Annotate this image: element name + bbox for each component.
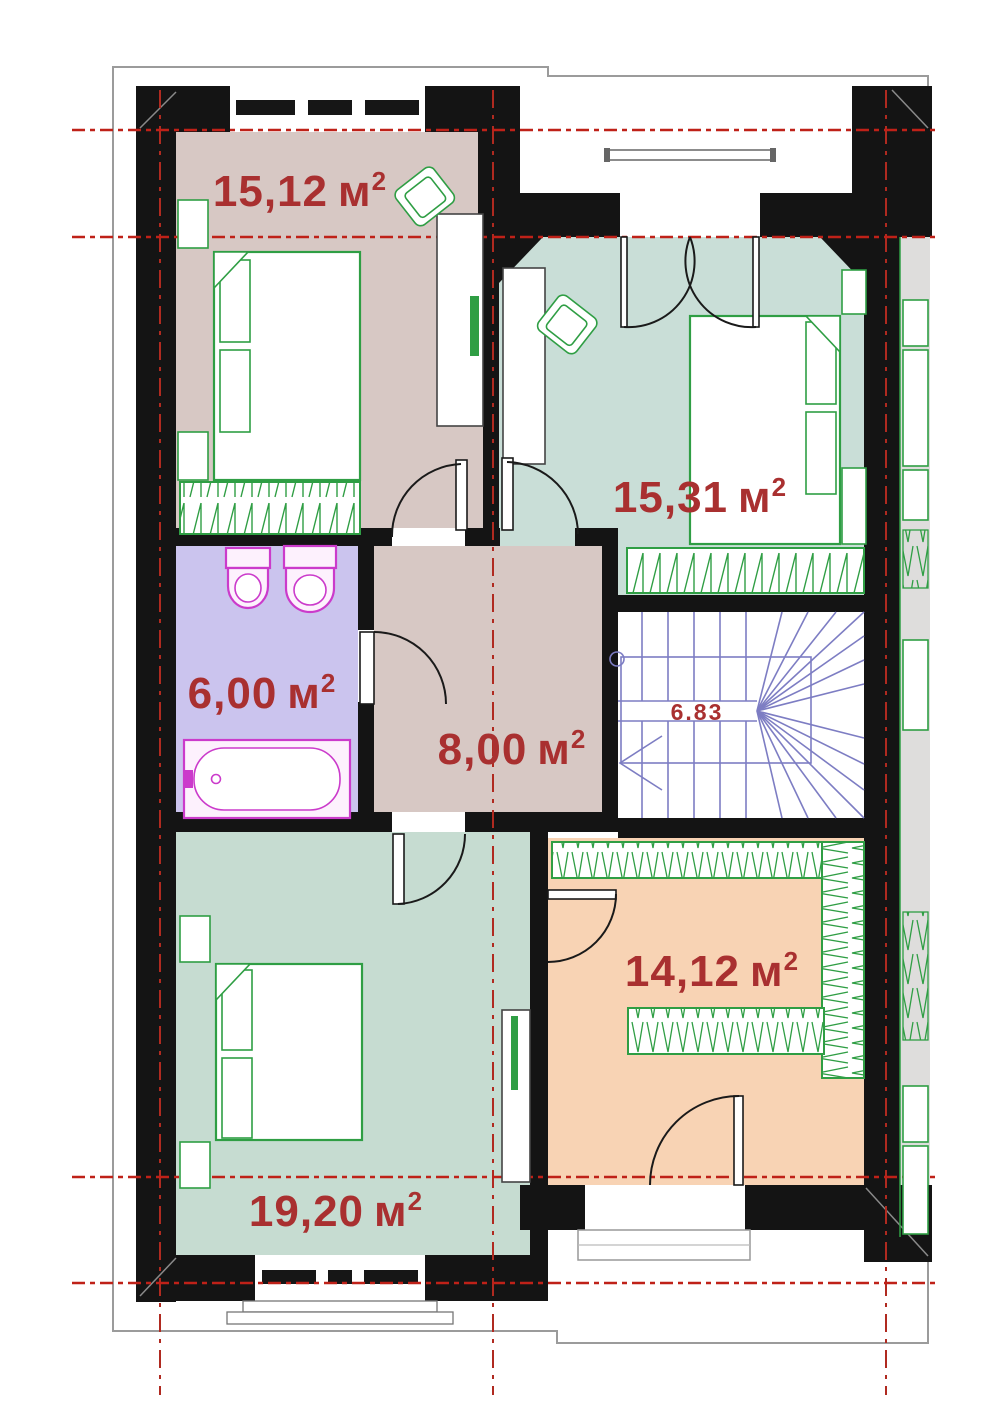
- sink: [284, 546, 336, 612]
- wall-segment: [358, 546, 374, 630]
- wall-segment: [136, 86, 230, 132]
- door-leaf: [502, 458, 513, 530]
- faucet: [184, 770, 193, 788]
- wall-segment: [483, 237, 499, 528]
- room-label-bedroom-top-right: 15,31м2: [613, 472, 787, 522]
- wall-segment: [520, 1185, 585, 1230]
- room-label-dressing-room: 14,12м2: [625, 946, 799, 996]
- nightstand: [178, 432, 208, 480]
- bathtub: [184, 740, 350, 818]
- wardrobe-dressing-middle: [628, 1008, 824, 1054]
- wall-segment: [478, 86, 520, 237]
- door-leaf: [393, 834, 404, 904]
- balcony-railing: [604, 148, 776, 162]
- wall-segment: [136, 1255, 255, 1301]
- nightstand: [180, 1142, 210, 1188]
- tv-panel: [511, 1016, 518, 1090]
- nightstand: [842, 270, 866, 314]
- wall-segment: [760, 193, 852, 237]
- tv-panel: [470, 296, 479, 356]
- wall-segment: [465, 812, 618, 832]
- wall-segment: [745, 1185, 864, 1230]
- wardrobe-dressing-right: [822, 842, 864, 1078]
- window-bottom: [227, 1257, 453, 1324]
- wall-segment: [602, 528, 618, 832]
- wall-segment: [864, 237, 900, 1237]
- wardrobe-bedroom-top-left: [180, 482, 360, 534]
- wall-segment: [465, 528, 500, 546]
- wall-segment: [602, 595, 864, 612]
- desk: [503, 268, 545, 464]
- room-label-bedroom-bottom-left: 19,20м2: [249, 1186, 423, 1236]
- wall-segment: [358, 702, 374, 812]
- door-leaf: [621, 237, 627, 327]
- wall-segment: [136, 86, 176, 1302]
- pillow: [222, 1058, 252, 1138]
- wardrobe-bedroom-top-right: [627, 548, 864, 593]
- nightstand: [178, 200, 208, 248]
- door-leaf: [548, 890, 616, 899]
- room-label-staircase: 6.83: [671, 699, 724, 725]
- room-label-bathroom: 6,00м2: [188, 668, 337, 718]
- wardrobe-dressing-top: [552, 842, 860, 878]
- window-top: [230, 88, 425, 130]
- nightstand: [180, 916, 210, 962]
- wall-segment: [618, 818, 864, 838]
- nightstand: [842, 468, 866, 544]
- pillow: [806, 412, 836, 494]
- floor-plan: 15,12м2 15,31м2 6,00м2 8,00м2 6.83 19,20…: [0, 0, 999, 1412]
- floor-plan-canvas: 15,12м2 15,31м2 6,00м2 8,00м2 6.83 19,20…: [0, 0, 999, 1412]
- room-label-bedroom-top-left: 15,12м2: [213, 166, 387, 216]
- room-label-hallway: 8,00м2: [438, 724, 587, 774]
- door-leaf: [360, 632, 374, 704]
- wall-segment: [852, 86, 932, 237]
- door-leaf: [753, 237, 759, 327]
- wall-segment: [520, 193, 620, 237]
- wall-segment: [425, 1255, 548, 1301]
- pillow: [220, 350, 250, 432]
- door-leaf: [734, 1096, 743, 1185]
- toilet: [226, 548, 270, 608]
- entry-step: [578, 1230, 750, 1260]
- door-leaf: [456, 460, 467, 530]
